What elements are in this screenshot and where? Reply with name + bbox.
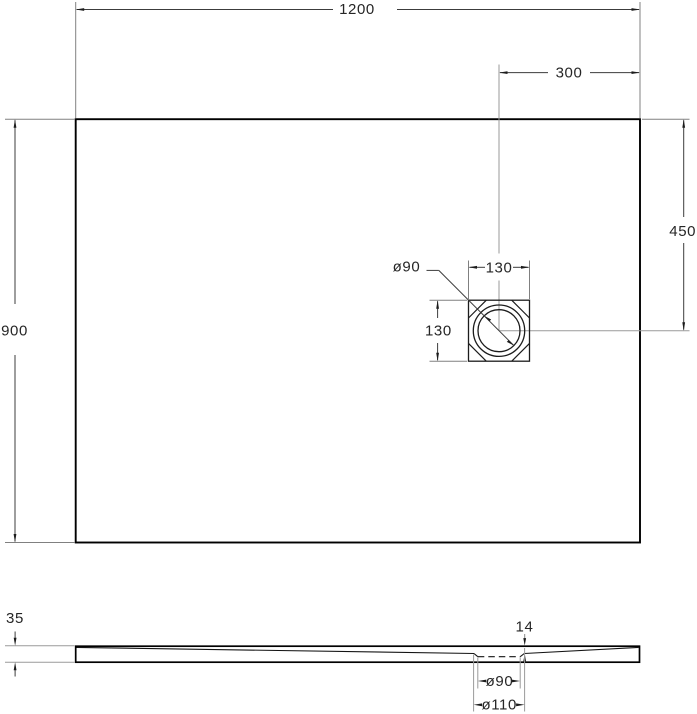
svg-text:1200: 1200: [339, 1, 375, 18]
svg-text:ø110: ø110: [481, 697, 516, 714]
svg-text:300: 300: [556, 64, 583, 81]
svg-text:35: 35: [6, 610, 24, 627]
svg-text:ø90: ø90: [393, 258, 421, 275]
svg-text:130: 130: [486, 259, 513, 276]
svg-text:900: 900: [1, 323, 28, 340]
svg-text:450: 450: [669, 223, 696, 240]
svg-text:130: 130: [425, 323, 452, 340]
svg-text:ø90: ø90: [486, 673, 514, 690]
svg-text:14: 14: [516, 619, 534, 636]
